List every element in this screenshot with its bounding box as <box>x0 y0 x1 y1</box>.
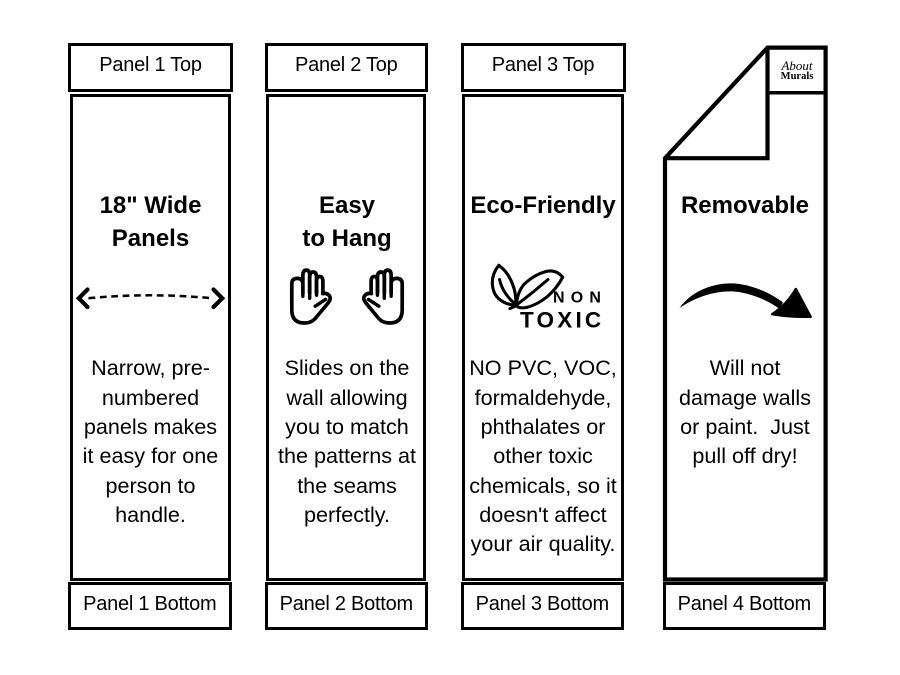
svg-text:NON: NON <box>553 290 607 307</box>
svg-text:TOXIC: TOXIC <box>520 307 604 332</box>
